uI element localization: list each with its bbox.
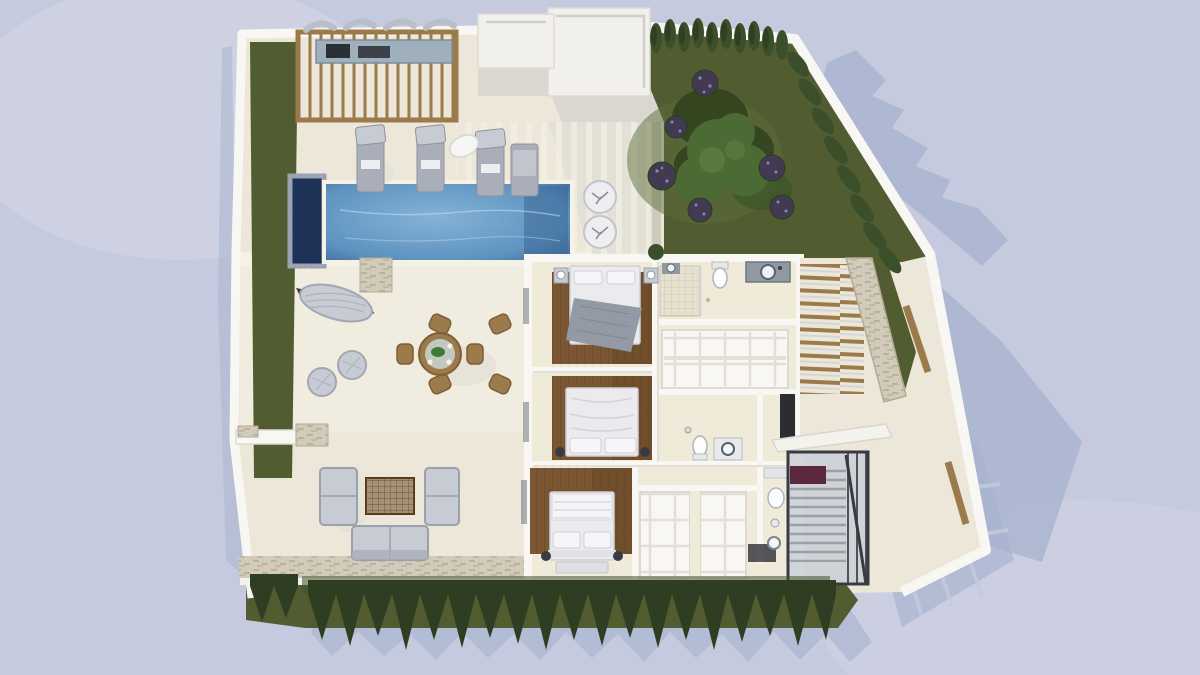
spa (290, 176, 324, 266)
villa-plan-svg (0, 0, 1200, 675)
grill (326, 44, 350, 58)
table-plant (431, 347, 445, 357)
toilet (693, 436, 707, 456)
floor-drain (706, 298, 710, 302)
bed-2 (555, 388, 650, 457)
corner-shrub (648, 244, 664, 260)
stone-cap (238, 426, 258, 437)
floor-lamp (685, 427, 691, 433)
house (521, 258, 800, 583)
bed-bench (556, 562, 608, 573)
floor-lamp (771, 519, 779, 527)
stair-canopy (790, 466, 826, 484)
toilet (768, 488, 784, 508)
pedestal-sink (768, 537, 780, 549)
roof-main (548, 8, 650, 96)
toilet (713, 268, 727, 288)
render-canvas (0, 0, 1200, 675)
stone-planter (360, 258, 392, 292)
sink-appliance (358, 46, 390, 58)
pool-deep-end (524, 186, 568, 258)
stone-pillar (296, 424, 328, 446)
staircase (788, 452, 868, 584)
sink (761, 265, 775, 279)
sink (722, 443, 734, 455)
hall-wardrobe (662, 330, 788, 388)
